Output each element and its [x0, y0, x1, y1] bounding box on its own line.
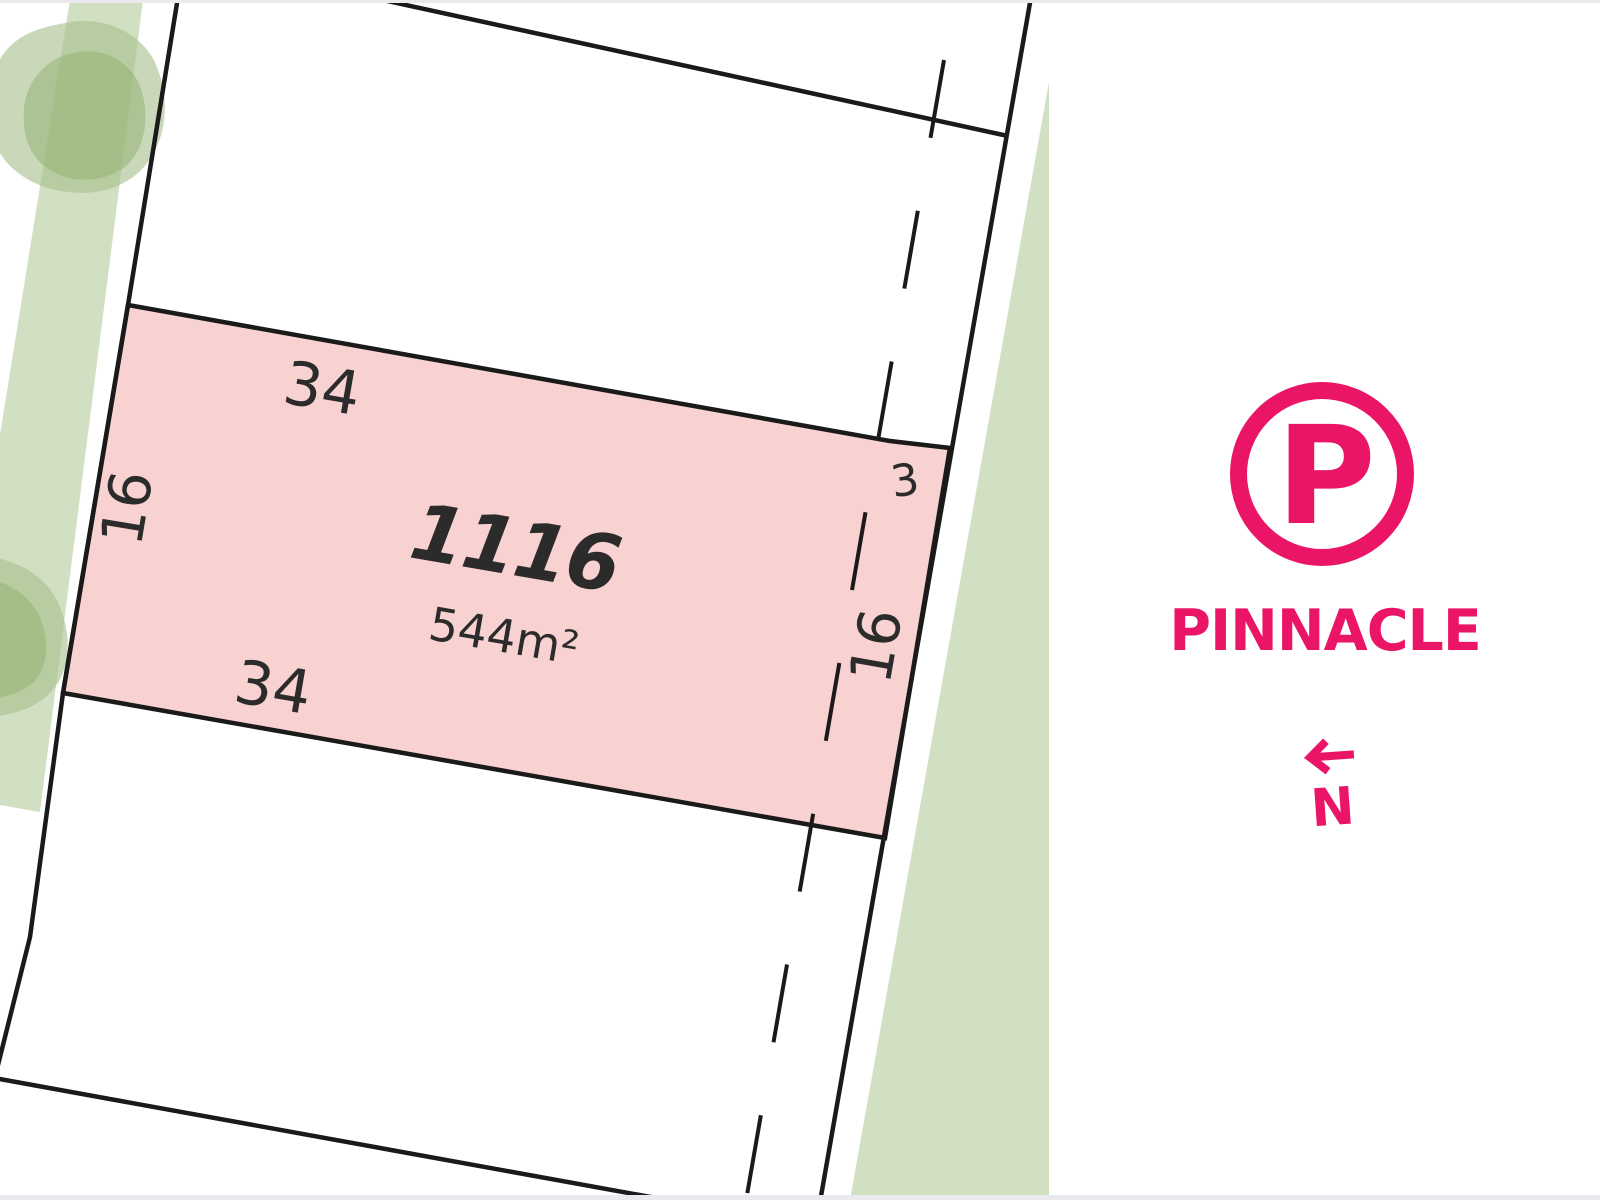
tree-canopy-core: [24, 51, 146, 179]
dimension-top-width: 34: [278, 348, 365, 430]
dimension-right-depth: 16: [836, 604, 916, 688]
pinnacle-logo-icon: P: [1230, 382, 1414, 566]
bottom-edge-strip: [0, 1195, 1600, 1200]
boundary-line-top-diagonal: [369, 0, 1008, 136]
screenshot: 34 34 16 16 3 1116 544m² P PINNACLE N: [0, 0, 1600, 1200]
pinnacle-logo-letter: P: [1268, 403, 1376, 545]
north-indicator: N: [1293, 734, 1370, 837]
top-edge-strip: [0, 0, 1600, 3]
north-arrow-icon: [1297, 734, 1362, 778]
dimension-left-depth: 16: [87, 466, 166, 550]
tree-canopy-top: [0, 21, 165, 193]
brand-panel: P PINNACLE N: [1050, 0, 1600, 1200]
brand-name: PINNACLE: [1050, 598, 1600, 664]
boundary-line-bottom-cross: [0, 1078, 667, 1200]
dimension-bottom-width: 34: [229, 647, 316, 729]
north-label: N: [1296, 780, 1369, 837]
